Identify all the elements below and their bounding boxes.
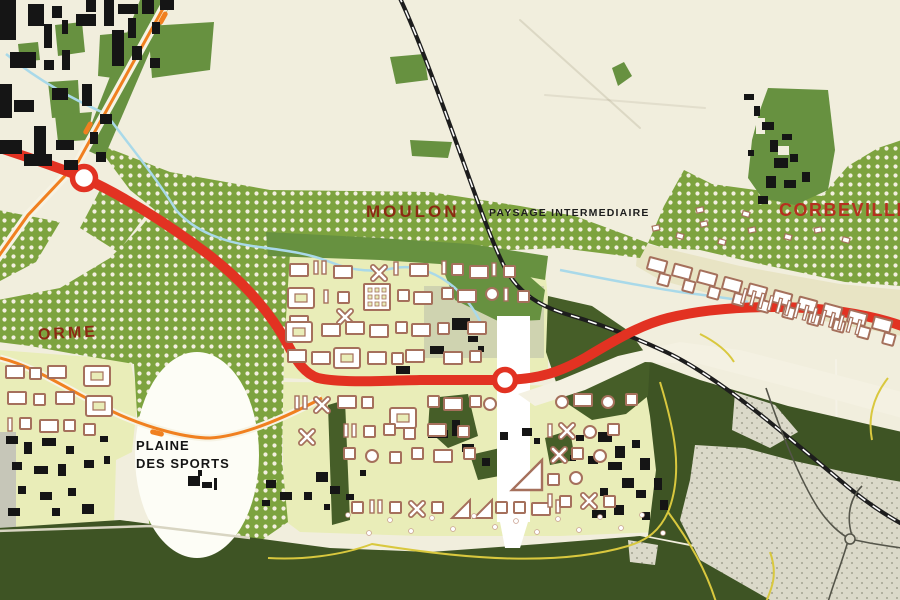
map-graphics	[0, 0, 900, 600]
roundabout	[845, 534, 855, 544]
route-node-center	[495, 370, 516, 391]
scanned-planning-map: MOULON PAYSAGE INTERMEDIAIRE CORBEVILLE …	[0, 0, 900, 600]
